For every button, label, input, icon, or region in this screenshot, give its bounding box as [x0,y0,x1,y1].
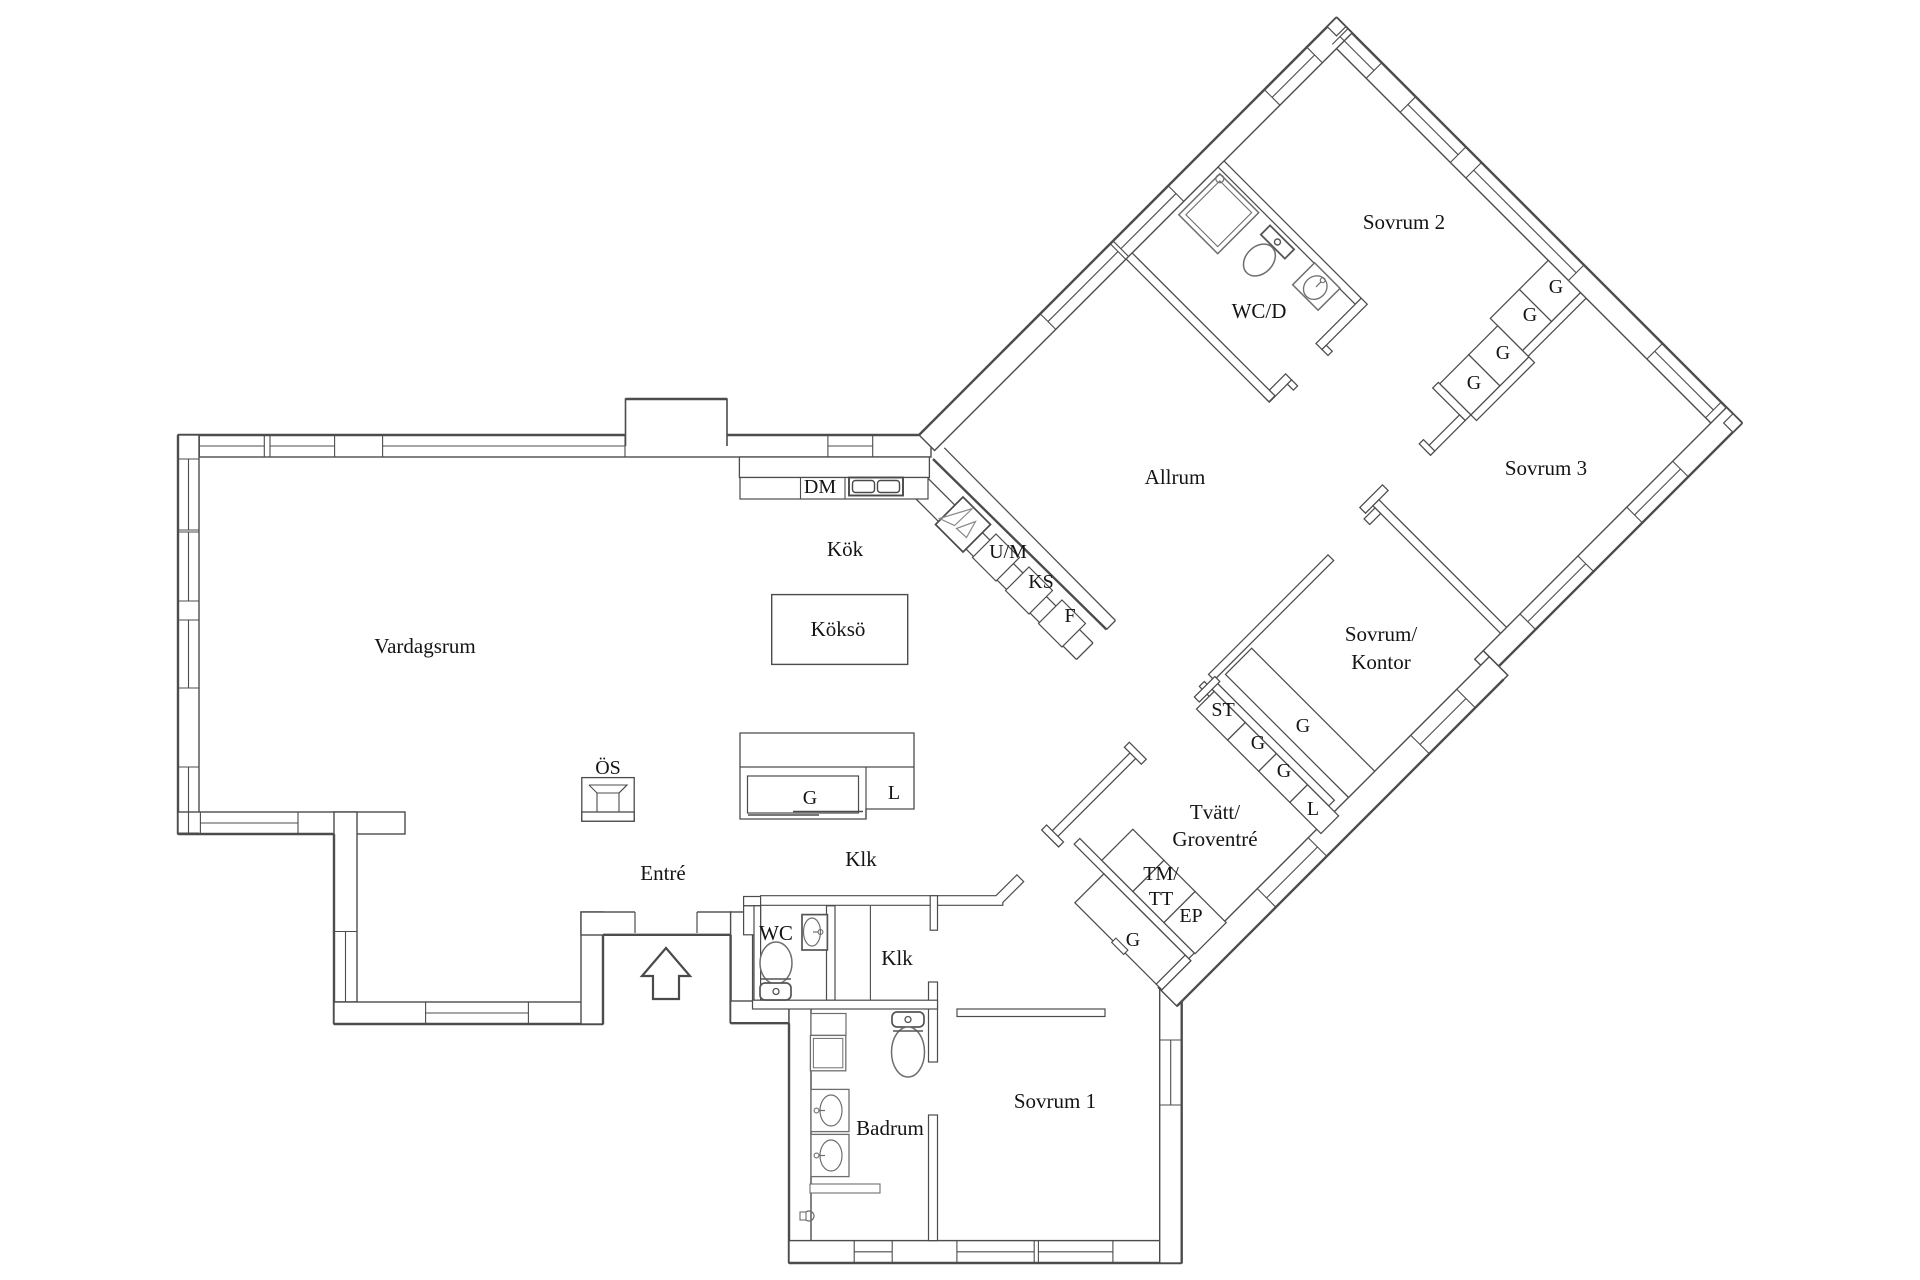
svg-text:Entré: Entré [640,861,685,885]
svg-text:F: F [1064,605,1075,627]
svg-text:G: G [1467,372,1481,394]
svg-text:Sovrum 2: Sovrum 2 [1363,210,1445,234]
svg-text:TM/: TM/ [1143,863,1179,885]
svg-text:G: G [1523,304,1537,326]
svg-text:G: G [1296,715,1310,737]
svg-text:WC/D: WC/D [1232,299,1287,323]
svg-text:G: G [803,787,817,809]
svg-text:L: L [888,782,900,804]
svg-text:Tvätt/: Tvätt/ [1190,800,1240,824]
svg-text:EP: EP [1179,905,1202,927]
svg-text:G: G [1549,276,1563,298]
svg-text:ST: ST [1211,699,1234,721]
svg-text:Klk: Klk [881,946,913,970]
svg-text:Badrum: Badrum [856,1116,924,1140]
svg-text:Sovrum/: Sovrum/ [1345,622,1418,646]
svg-text:Klk: Klk [845,847,877,871]
svg-text:Groventré: Groventré [1172,827,1257,851]
svg-text:L: L [1307,798,1319,820]
svg-text:KS: KS [1028,571,1054,593]
svg-text:Vardagsrum: Vardagsrum [374,634,475,658]
svg-text:G: G [1496,342,1510,364]
svg-text:U/M: U/M [989,541,1027,563]
svg-text:DM: DM [804,476,836,498]
svg-text:Kök: Kök [827,537,864,561]
svg-text:Sovrum 1: Sovrum 1 [1014,1089,1096,1113]
svg-text:Köksö: Köksö [811,617,866,641]
svg-text:Kontor: Kontor [1351,650,1411,674]
svg-text:G: G [1126,929,1140,951]
svg-text:G: G [1251,732,1265,754]
svg-text:G: G [1277,760,1291,782]
svg-text:WC: WC [759,921,793,945]
svg-text:ÖS: ÖS [595,756,621,779]
svg-text:Allrum: Allrum [1145,465,1206,489]
svg-text:Sovrum 3: Sovrum 3 [1505,456,1587,480]
svg-text:TT: TT [1149,888,1173,910]
